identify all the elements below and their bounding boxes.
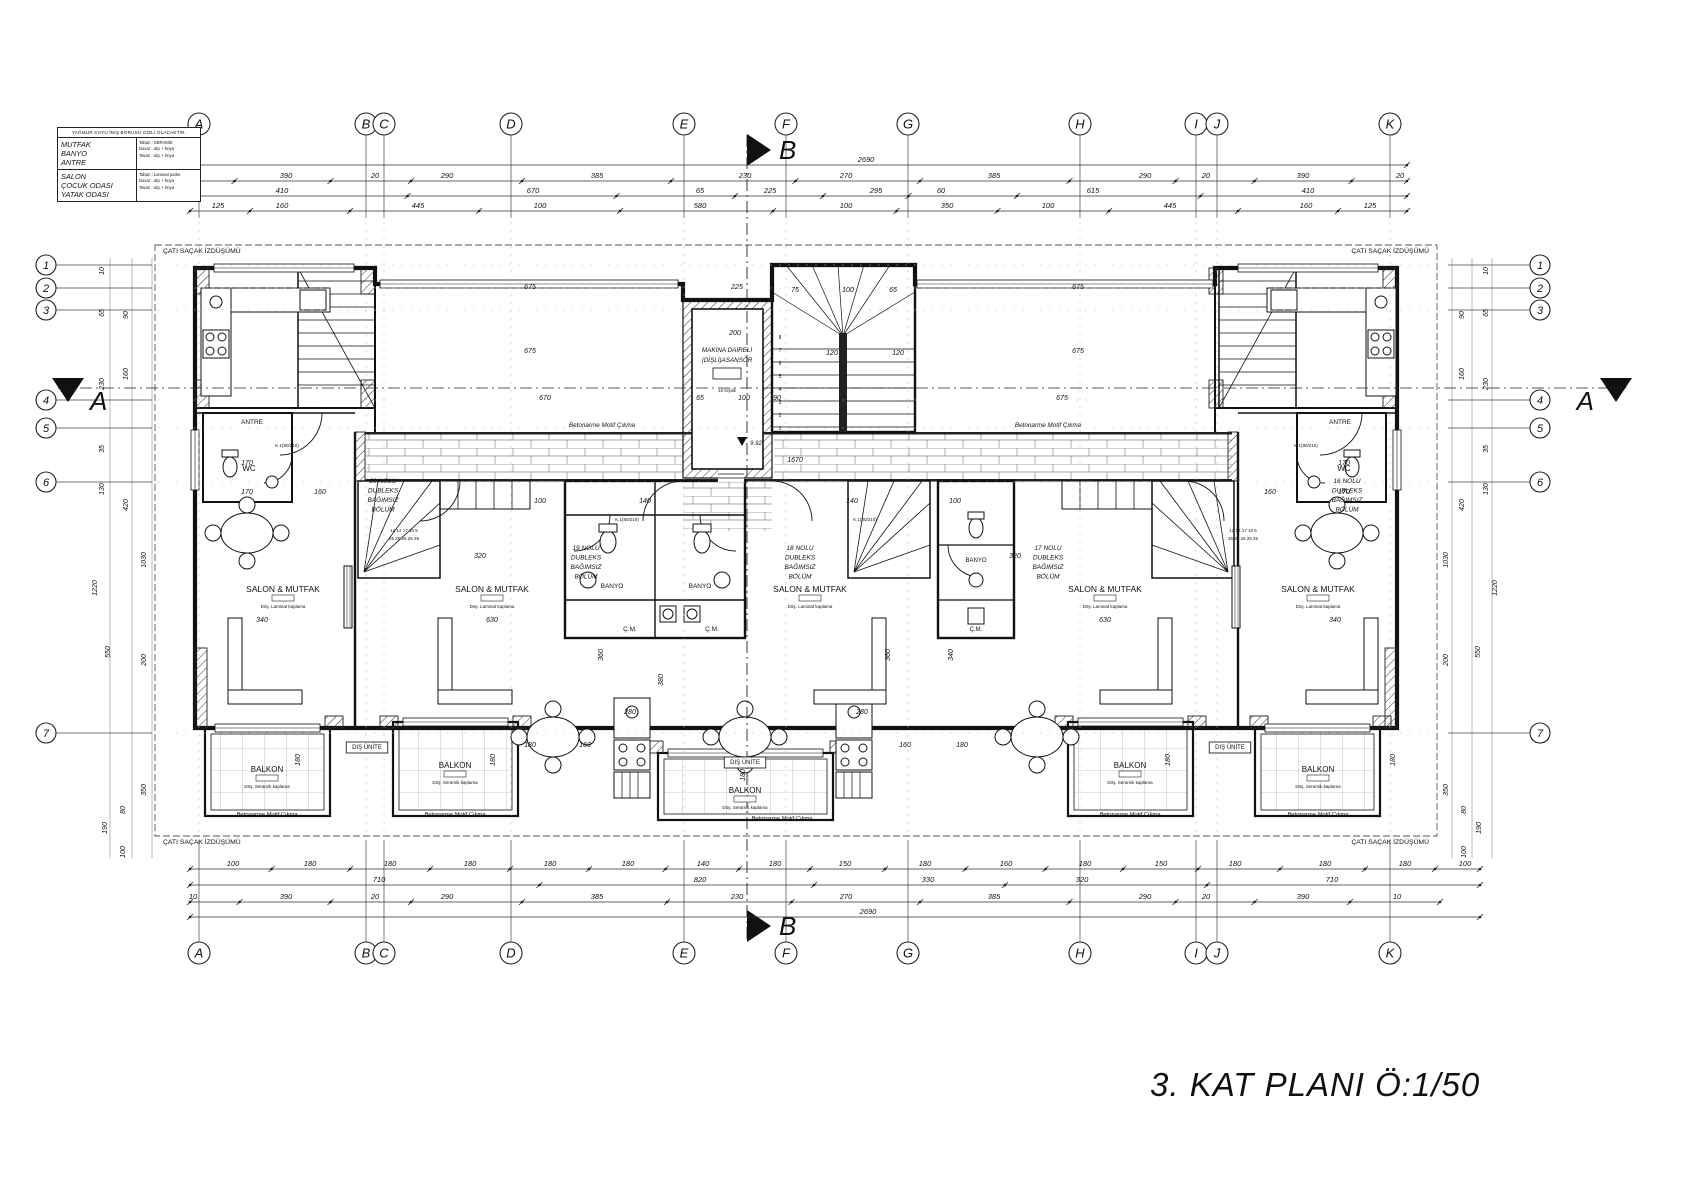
dim-text: 180 [524, 742, 536, 749]
room-label: DIŞ ÜNİTE [1215, 744, 1245, 751]
room-label: K.1(80/210) [1294, 443, 1318, 448]
dim-text: 160 [1000, 859, 1013, 868]
room-label: ÇATI SAÇAK İZDÜŞÜMÜ [163, 246, 241, 255]
dim-text: 100 [840, 201, 853, 210]
dim-text: 340 [256, 617, 268, 624]
room-label: 12 12 17 10 5 [1229, 528, 1257, 533]
room-label: Betonarme Motif Çıkma [1015, 422, 1082, 429]
dim-text: 330 [922, 875, 935, 884]
room-label: Betonarme Motif Çıkma [752, 816, 814, 822]
room-label: K.1(80/210) [275, 443, 299, 448]
dim-text: 675 [1056, 395, 1068, 402]
room-label: ÇATI SAÇAK İZDÜŞÜMÜ [1351, 837, 1429, 846]
room-label: Betonarme Motif Çıkma [1100, 812, 1162, 818]
axis-number: 5 [43, 423, 50, 435]
dim-text: 200 [141, 654, 148, 667]
legend-finish: Taban : SERAMİK Duvar : alçı + boya Tava… [137, 138, 200, 169]
dim-text: 160 [1459, 368, 1466, 380]
section-letter: A [1575, 386, 1594, 416]
area-box [1119, 771, 1141, 777]
dim-text: 10 [1393, 892, 1402, 901]
room-label: DUBLEKS [368, 488, 399, 495]
room-label: BÖLÜM [788, 573, 812, 581]
dim-text: 120 [826, 350, 838, 357]
dim-text: 445 [1164, 201, 1177, 210]
dim-text: 140 [697, 859, 710, 868]
dim-text: 290 [440, 171, 454, 180]
dim-text: 550 [1475, 646, 1482, 658]
room-label: ANTRE [241, 419, 264, 426]
room-sublabel: Döş. Laminat kaplama [788, 604, 833, 609]
room-label: BANYO [689, 583, 712, 590]
axis-letter: K [1386, 117, 1396, 132]
room-label: 19 NOLU [572, 545, 599, 552]
dim-text: 100 [738, 395, 750, 402]
dim-text: 410 [1302, 186, 1315, 195]
dim-text: 670 [539, 395, 551, 402]
room-sublabel: Döş. Seramik kaplama [1107, 780, 1153, 785]
floor-plan-svg: AABBCCDDEEFFGGHHIIJJKK11223344556677BBAA… [0, 0, 1684, 1191]
dim-text: 420 [1459, 499, 1466, 511]
axis-letter: A [194, 946, 204, 961]
dim-text: 410 [276, 186, 289, 195]
dim-text: 160 [579, 742, 591, 749]
room-label: 25 25 25 25 25 [389, 536, 420, 541]
area-box [272, 595, 294, 601]
axis-letter: E [680, 946, 689, 961]
section-arrow-icon [747, 910, 771, 942]
dim-text: 180 [1229, 859, 1242, 868]
axis-number: 5 [1537, 423, 1544, 435]
area-box [444, 771, 466, 777]
dim-text: 160 [899, 742, 911, 749]
room-label: 18 NOLU [786, 545, 813, 552]
axis-letter: C [379, 946, 389, 961]
area-box [734, 796, 756, 802]
dim-text: 290 [1138, 892, 1152, 901]
dim-text: 180 [919, 859, 932, 868]
section-letter: B [779, 135, 796, 165]
room-label: BÖLÜM [1036, 573, 1060, 581]
dim-text: 190 [102, 822, 109, 834]
axis-number: 1 [43, 260, 49, 272]
axis-number: 2 [1536, 283, 1543, 295]
dim-text: 180 [1390, 754, 1397, 766]
dim-text: 180 [1319, 859, 1332, 868]
dim-text: 295 [869, 186, 883, 195]
dim-text: 2690 [859, 907, 878, 916]
room-label: BALKON [1302, 765, 1335, 774]
stove [614, 740, 650, 770]
room-label: DUBLEKS [1033, 555, 1064, 562]
room-label: 2 [779, 413, 782, 419]
dim-text: 10 [1483, 267, 1490, 275]
axis-number: 4 [43, 395, 49, 407]
room-label: 1 [779, 426, 782, 432]
room-label: 3 [779, 400, 782, 406]
room-label: WC [1337, 464, 1351, 473]
axis-number: 3 [1537, 305, 1544, 317]
axis-letter: B [362, 117, 371, 132]
dim-text: 90 [1459, 311, 1466, 319]
room-label: BAĞIMSIZ [570, 562, 602, 571]
room-sublabel: Döş. Laminat kaplama [1083, 604, 1128, 609]
section-arrow-icon [1600, 378, 1632, 402]
dim-text: 320 [1009, 553, 1021, 560]
dim-text: 20 [1201, 892, 1211, 901]
room-sublabel: Döş. Laminat kaplama [470, 604, 515, 609]
dim-text: 280 [855, 709, 868, 716]
dim-text: 350 [941, 201, 954, 210]
dim-text: 180 [956, 742, 968, 749]
section-letter: B [779, 911, 796, 941]
dim-text: 420 [123, 499, 130, 511]
dim-text: 230 [738, 171, 752, 180]
room-label: Ç.M. [705, 626, 719, 633]
dim-text: 675 [1072, 348, 1084, 355]
axis-letter: G [903, 946, 913, 961]
room-sublabel: Döş. Laminat kaplama [1296, 604, 1341, 609]
dim-text: 100 [534, 498, 546, 505]
axis-number: 2 [42, 283, 49, 295]
axis-number: 4 [1537, 395, 1543, 407]
dim-text: 180 [295, 754, 302, 766]
dim-text: 20 [370, 171, 380, 180]
dim-text: 100 [1042, 201, 1055, 210]
dim-text: 225 [763, 186, 777, 195]
dim-text: 10 [99, 267, 106, 275]
dim-text: 120 [892, 350, 904, 357]
dim-text: 170 [241, 489, 253, 496]
dim-text: 180 [304, 859, 317, 868]
room-label: 25 25 25 25 25 [1228, 536, 1259, 541]
dim-text: 280 [623, 709, 636, 716]
dim-text: 675 [1072, 284, 1084, 291]
dim-text: 630 [1099, 617, 1111, 624]
axis-number: 7 [43, 728, 50, 740]
room-label: BÖLÜM [574, 573, 598, 581]
area-box [799, 595, 821, 601]
dim-text: 100 [1459, 859, 1472, 868]
dim-text: 180 [1399, 859, 1412, 868]
axis-number: 3 [43, 305, 50, 317]
room-label: DUBLEKS [571, 555, 602, 562]
area-box [1094, 595, 1116, 601]
legend-row: SALON ÇOCUK ODASI YATAK ODASI Taban : La… [58, 170, 200, 201]
room-label: 5 [779, 374, 782, 380]
dim-text: 340 [1329, 617, 1341, 624]
dim-text: 80 [1461, 806, 1468, 814]
dim-text: 190 [1476, 822, 1483, 834]
dim-text: 710 [373, 875, 386, 884]
dim-text: 270 [839, 892, 853, 901]
dim-text: 130 [99, 483, 106, 495]
room-label: ÇATI SAÇAK İZDÜŞÜMÜ [163, 837, 241, 846]
dim-text: 390 [1297, 892, 1310, 901]
room-label: SALON & MUTFAK [773, 584, 847, 594]
dim-text: 290 [1138, 171, 1152, 180]
axis-letter: F [782, 946, 791, 961]
dim-text: 100 [120, 846, 127, 858]
dim-text: 100 [227, 859, 240, 868]
legend-header: YAĞMUR SUYU İNİŞ BORUSU GİZLİ OLACAKTIR. [58, 128, 200, 138]
dim-text: 160 [123, 368, 130, 380]
section-arrow-icon [52, 378, 84, 402]
dim-text: 100 [842, 287, 854, 294]
dim-text: 390 [280, 171, 293, 180]
axis-letter: J [1213, 117, 1221, 132]
room-label: K.1(80/210) [853, 517, 877, 522]
room-label: BÖLÜM [1335, 506, 1359, 514]
axis-number: 6 [43, 477, 50, 489]
dim-text: 2690 [857, 155, 876, 164]
sofas [228, 618, 1378, 704]
room-label: BALKON [1114, 761, 1147, 770]
room-label: 12 12 17 10 5 [390, 528, 418, 533]
room-label: 10 Kişilik [718, 388, 737, 393]
area-box [1307, 775, 1329, 781]
axis-letter: D [506, 946, 515, 961]
dim-text: 385 [591, 171, 604, 180]
dim-text: 180 [622, 859, 635, 868]
dim-text: 180 [384, 859, 397, 868]
room-label: ÇATI SAÇAK İZDÜŞÜMÜ [1351, 246, 1429, 255]
room-label: Betonarme Motif Çıkma [237, 812, 299, 818]
room-label: Betonarme Motif Çıkma [569, 422, 636, 429]
room-label: BAĞIMSIZ [367, 495, 399, 504]
area-box [1307, 595, 1329, 601]
axis-number: 6 [1537, 477, 1544, 489]
dim-text: 670 [527, 186, 540, 195]
dim-text: 225 [730, 284, 743, 291]
kitchen-right [1267, 288, 1396, 396]
room-sublabel: Döş. Seramik kaplama [244, 784, 290, 789]
legend-row: MUTFAK BANYO ANTRE Taban : SERAMİK Duvar… [58, 138, 200, 170]
dim-text: 160 [314, 489, 326, 496]
dim-text: 10 [189, 892, 198, 901]
axis-letter: F [782, 117, 791, 132]
axis-letter: E [680, 117, 689, 132]
room-label: 20 NOLU [368, 478, 396, 485]
dim-text: 35 [99, 445, 106, 453]
room-label: 4 [779, 387, 782, 393]
dim-text: 290 [440, 892, 454, 901]
dim-text: 20 [1395, 171, 1405, 180]
room-label: SALON & MUTFAK [455, 584, 529, 594]
room-label: Ç.M. [970, 627, 983, 633]
axis-letter: H [1075, 117, 1085, 132]
room-label: 9.92 [750, 441, 762, 447]
dim-text: 35 [1483, 445, 1490, 453]
room-label: SALON & MUTFAK [1281, 584, 1355, 594]
room-sublabel: Döş. Seramik kaplama [432, 780, 478, 785]
area-box [256, 775, 278, 781]
axis-letter: C [379, 117, 389, 132]
room-label: BANYO [601, 583, 624, 590]
room-label: DIŞ ÜNİTE [352, 744, 382, 751]
dim-text: 65 [1483, 309, 1490, 317]
dim-text: 125 [212, 201, 225, 210]
dim-text: 230 [99, 378, 106, 391]
dim-text: 130 [1483, 483, 1490, 495]
dim-text: 320 [474, 553, 486, 560]
dim-text: 65 [889, 287, 897, 294]
room-label: SALON & MUTFAK [1068, 584, 1142, 594]
dim-text: 630 [486, 617, 498, 624]
balconies [205, 722, 1380, 820]
axis-number: 7 [1537, 728, 1544, 740]
dim-text: 75 [791, 287, 799, 294]
dim-text: 360 [598, 649, 605, 661]
dim-text: 675 [524, 284, 536, 291]
room-label: Ç.M. [623, 626, 637, 633]
dim-text: 180 [769, 859, 782, 868]
dim-text: 60 [937, 186, 946, 195]
dim-text: 1220 [92, 580, 99, 596]
room-label: WC [242, 464, 256, 473]
dim-text: 1670 [787, 457, 803, 464]
room-sublabel: Döş. Laminat kaplama [261, 604, 306, 609]
section-arrow-icon [747, 134, 771, 166]
dim-text: 150 [839, 859, 852, 868]
dim-text: 385 [591, 892, 604, 901]
room-label: 7 [779, 348, 782, 354]
room-sublabel: Döş. Seramik kaplama [722, 805, 768, 810]
dim-text: 180 [1079, 859, 1092, 868]
axis-letter: D [506, 117, 515, 132]
dim-text: 20 [370, 892, 380, 901]
dim-text: 80 [120, 806, 127, 814]
dim-text: 675 [524, 348, 536, 355]
axis-letter: K [1386, 946, 1396, 961]
room-label: BAĞIMSIZ [784, 562, 816, 571]
dim-text: 100 [1461, 846, 1468, 858]
room-label: DUBLEKS [785, 555, 816, 562]
room-label: 6 [779, 361, 782, 367]
dim-text: 230 [730, 892, 744, 901]
room-label: (DİŞLİ)ASANSÖR [702, 356, 753, 364]
room-label: BALKON [251, 765, 284, 774]
dim-text: 160 [1300, 201, 1313, 210]
stove [836, 740, 872, 770]
room-label: DIŞ ÜNİTE [730, 759, 760, 766]
dim-text: 140 [639, 498, 651, 505]
dim-text: 710 [1326, 875, 1339, 884]
kitchen-left [201, 288, 330, 396]
dim-text: 100 [534, 201, 547, 210]
dim-text: 445 [412, 201, 425, 210]
dim-text: 580 [694, 201, 707, 210]
room-label: BÖLÜM [371, 506, 395, 514]
dim-text: 360 [885, 649, 892, 661]
dim-text: 615 [1087, 186, 1100, 195]
dim-text: 390 [280, 892, 293, 901]
dim-text: 65 [99, 309, 106, 317]
dim-text: 385 [988, 171, 1001, 180]
sheet-title: 3. KAT PLANI Ö:1/50 [1150, 1066, 1570, 1104]
axis-letter: H [1075, 946, 1085, 961]
axis-letter: J [1213, 946, 1221, 961]
dim-text: 160 [276, 201, 289, 210]
axis-number: 1 [1537, 260, 1543, 272]
dim-text: 270 [839, 171, 853, 180]
elevator-area-box [713, 368, 741, 379]
room-label: 8 [779, 335, 782, 341]
dim-text: 180 [740, 769, 747, 781]
dim-text: 320 [1076, 875, 1089, 884]
room-label: BALKON [439, 761, 472, 770]
dim-text: 180 [544, 859, 557, 868]
stair-rail [839, 333, 847, 432]
dim-text: 820 [694, 875, 707, 884]
dim-text: 100 [949, 498, 961, 505]
dim-text: 140 [846, 498, 858, 505]
room-label: MAKİNA DAİRELİ [702, 346, 752, 354]
room-label: BANYO [965, 558, 986, 564]
dim-text: 385 [988, 892, 1001, 901]
room-label: 16 NOLU [1333, 478, 1360, 485]
room-label: Betonarme Motif Çıkma [425, 812, 487, 818]
legend-rooms: SALON ÇOCUK ODASI YATAK ODASI [58, 170, 137, 201]
drawing-sheet: AABBCCDDEEFFGGHHIIJJKK11223344556677BBAA… [0, 0, 1684, 1191]
room-label: BALKON [729, 786, 762, 795]
finish-legend: YAĞMUR SUYU İNİŞ BORUSU GİZLİ OLACAKTIR.… [57, 127, 201, 202]
dim-text: 230 [1483, 378, 1490, 391]
room-label: Betonarme Motif Çıkma [1288, 812, 1350, 818]
legend-finish: Taban : Laminat parke Duvar : alçı + boy… [137, 170, 200, 201]
dim-text: 180 [1165, 754, 1172, 766]
dim-text: 65 [696, 186, 705, 195]
dim-text: 90 [123, 311, 130, 319]
axis-letter: G [903, 117, 913, 132]
room-sublabel: Döş. Seramik kaplama [1295, 784, 1341, 789]
room-label: SALON & MUTFAK [246, 584, 320, 594]
dim-text: 125 [1364, 201, 1377, 210]
dim-text: 160 [1264, 489, 1276, 496]
room-label: ANTRE [1329, 419, 1352, 426]
dim-text: 65 [696, 395, 704, 402]
dim-text: 380 [658, 674, 665, 686]
dim-text: 200 [1443, 654, 1450, 667]
dim-text: 1220 [1492, 580, 1499, 596]
elevator-door [718, 470, 744, 482]
room-label: 17 NOLU [1034, 545, 1061, 552]
room-label: BAĞIMSIZ [1032, 562, 1064, 571]
room-label: K.1(80/210) [615, 517, 639, 522]
room-label: BAĞIMSIZ [1331, 495, 1363, 504]
legend-rooms: MUTFAK BANYO ANTRE [58, 138, 137, 169]
dim-text: 350 [141, 784, 148, 796]
dim-text: 550 [105, 646, 112, 658]
dim-text: 20 [1201, 171, 1211, 180]
dim-text: 180 [464, 859, 477, 868]
dim-text: 180 [490, 754, 497, 766]
dim-text: 340 [948, 649, 955, 661]
dim-text: 1030 [141, 552, 148, 568]
dim-text: 390 [1297, 171, 1310, 180]
axis-letter: I [1194, 117, 1198, 132]
axis-letter: I [1194, 946, 1198, 961]
dim-text: 150 [1155, 859, 1168, 868]
axis-letter: B [362, 946, 371, 961]
dim-text: 1030 [1443, 552, 1450, 568]
dim-text: 200 [728, 330, 741, 337]
dim-text: 350 [1443, 784, 1450, 796]
room-label: DUBLEKS [1332, 488, 1363, 495]
area-box [481, 595, 503, 601]
